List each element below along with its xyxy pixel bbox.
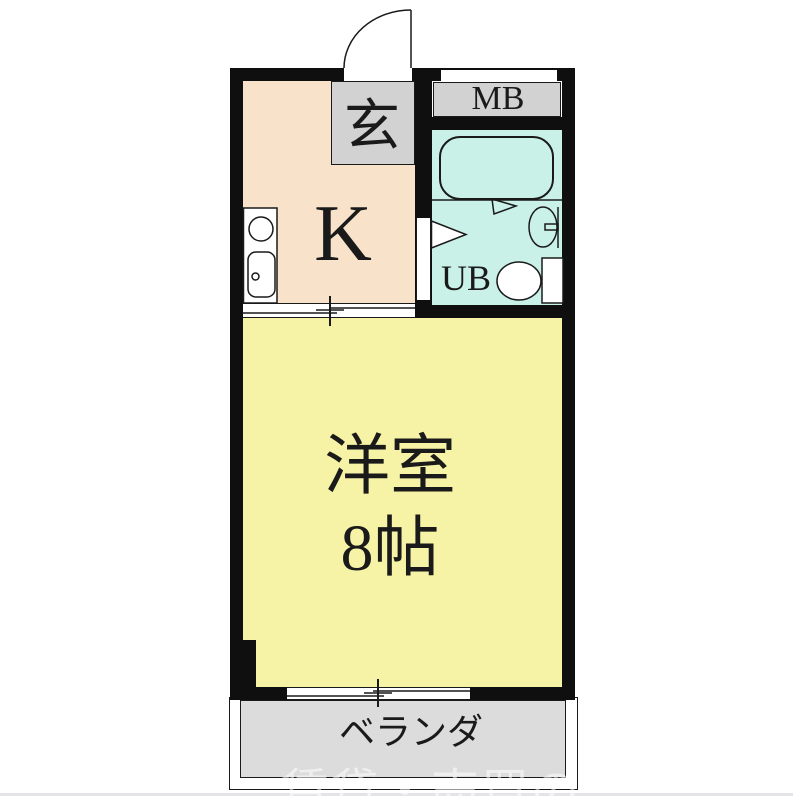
label-meter-box: MB — [472, 82, 525, 116]
label-veranda: ベランダ — [339, 714, 483, 750]
ub-door-icon — [432, 221, 467, 248]
floor-plan: 玄 MB K UB 洋室 8帖 ベランダ 賃貸・売買の — [0, 0, 793, 800]
watermark-text: 賃貸・売買の — [281, 752, 581, 800]
label-kitchen: K — [314, 194, 372, 274]
entrance-door-icon — [344, 10, 411, 68]
kitchen-counter-icon — [244, 208, 278, 303]
washbasin-icon — [529, 207, 558, 248]
label-main-room-name: 洋室 — [324, 426, 456, 508]
label-genkan: 玄 — [344, 99, 400, 155]
label-unit-bath: UB — [441, 260, 491, 296]
label-main-room: 洋室 8帖 — [324, 426, 456, 590]
label-main-room-size: 8帖 — [324, 508, 456, 590]
veranda-window-icon — [287, 679, 470, 707]
toilet-icon — [497, 258, 563, 303]
bathtub-icon — [440, 137, 553, 199]
